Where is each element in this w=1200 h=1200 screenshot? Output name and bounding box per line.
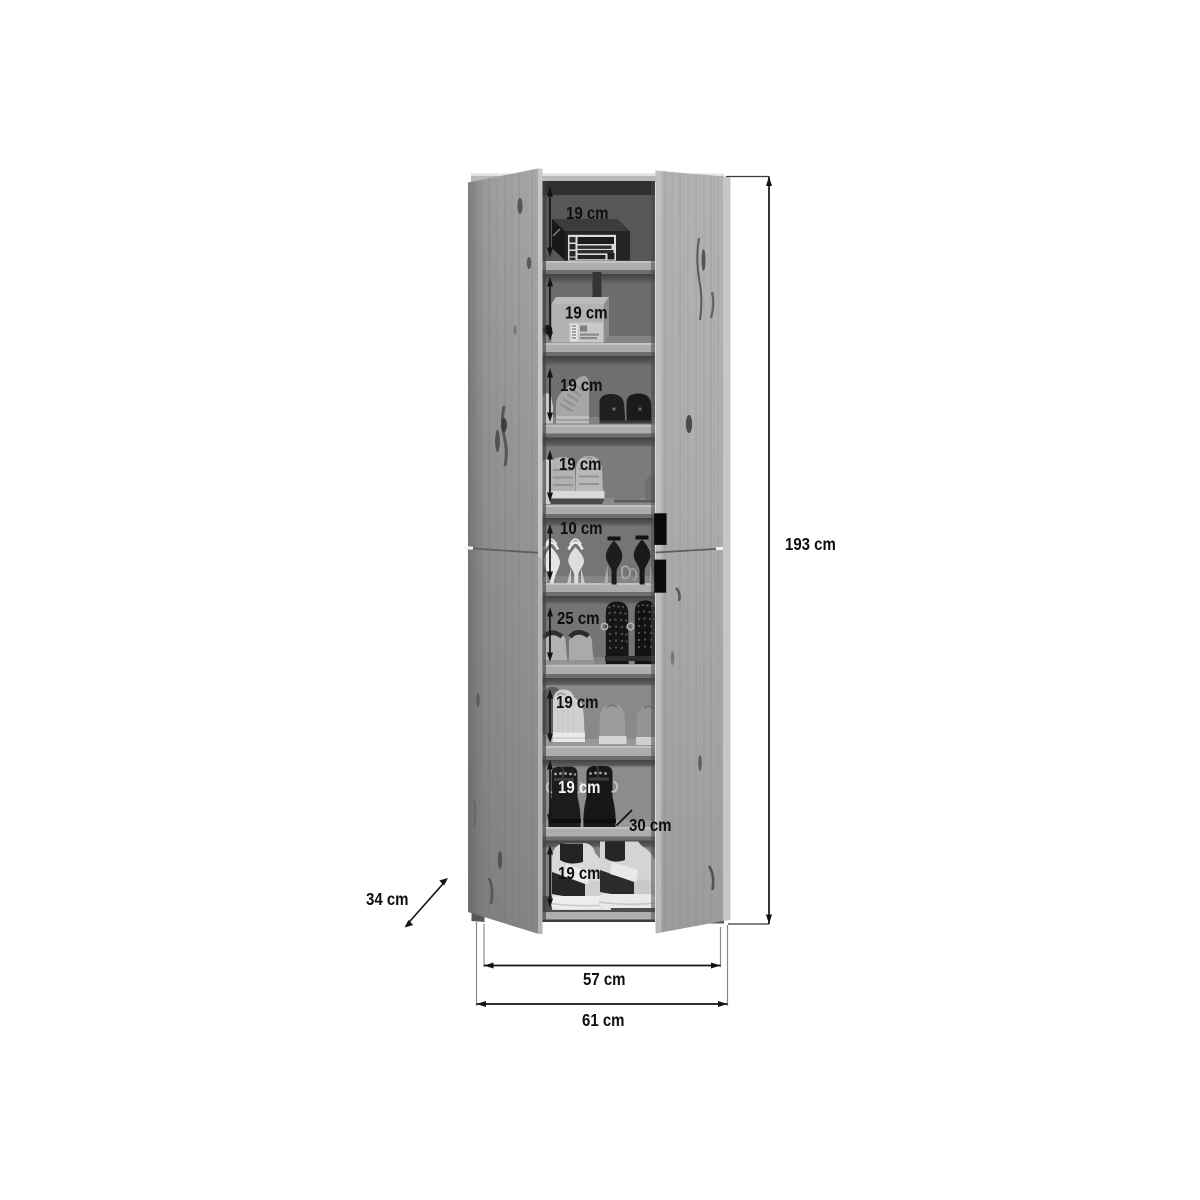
svg-text:19 cm: 19 cm — [558, 864, 601, 883]
svg-text:30 cm: 30 cm — [629, 816, 672, 835]
svg-text:34 cm: 34 cm — [366, 890, 409, 909]
svg-text:193 cm: 193 cm — [785, 535, 836, 554]
svg-text:19 cm: 19 cm — [558, 778, 601, 797]
svg-text:57 cm: 57 cm — [583, 970, 626, 989]
svg-text:10 cm: 10 cm — [560, 519, 603, 538]
svg-text:19 cm: 19 cm — [566, 204, 609, 223]
svg-text:61 cm: 61 cm — [582, 1011, 625, 1030]
svg-text:19 cm: 19 cm — [559, 455, 602, 474]
svg-text:25 cm: 25 cm — [557, 609, 600, 628]
svg-text:19 cm: 19 cm — [565, 304, 608, 323]
svg-text:19 cm: 19 cm — [556, 693, 599, 712]
svg-text:19 cm: 19 cm — [560, 376, 603, 395]
